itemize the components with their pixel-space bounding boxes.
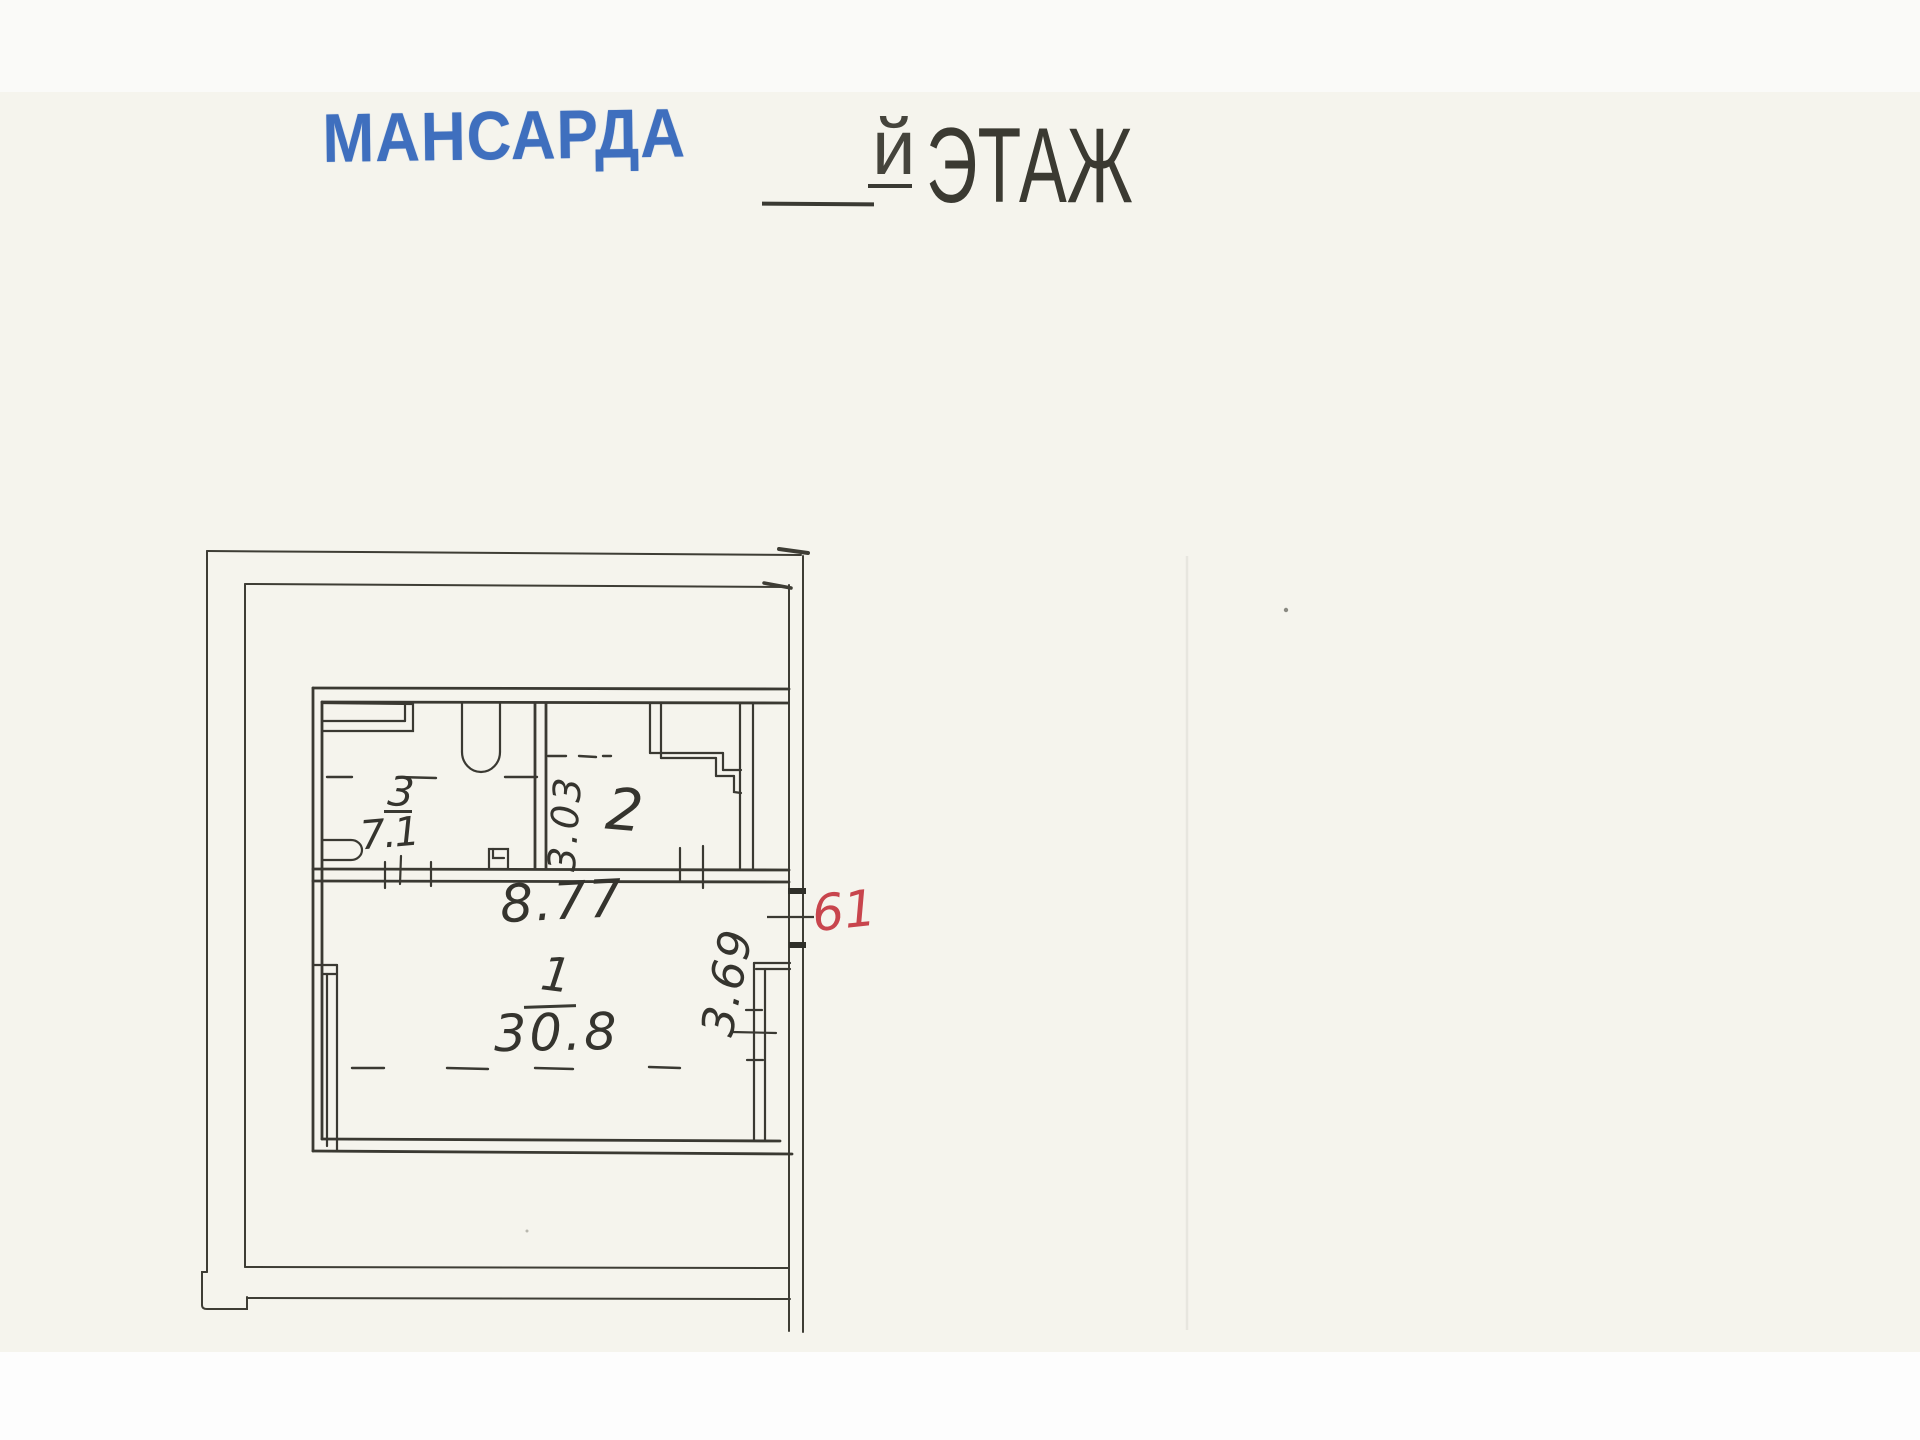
room3-number-label: 3	[386, 771, 416, 814]
floor-number-blank-line	[762, 202, 874, 207]
room2-number-label: 2	[604, 780, 646, 841]
floor-word: ЭТАЖ	[926, 112, 1133, 219]
mansarda-stamp: МАНСАРДА	[322, 98, 686, 173]
room1-area-label: 30.8	[494, 1007, 620, 1060]
apartment-number-label: 61	[810, 883, 879, 939]
entrance-opening-marks	[767, 891, 814, 945]
scanned-floor-plan-page: МАНСАРДА й ЭТАЖ 8.77 1 30.8 2 3 7.1 3.03…	[0, 0, 1920, 1440]
scan-artifacts	[526, 556, 1289, 1330]
dimension-room2-depth: 3.03	[543, 773, 588, 872]
dimension-top-width: 8.77	[499, 873, 625, 931]
room3-area-label: 7.1	[358, 812, 419, 857]
floor-suffix-letter: й	[872, 108, 916, 186]
room1-number-label: 1	[538, 950, 573, 1000]
floor-suffix-underline	[868, 184, 912, 188]
